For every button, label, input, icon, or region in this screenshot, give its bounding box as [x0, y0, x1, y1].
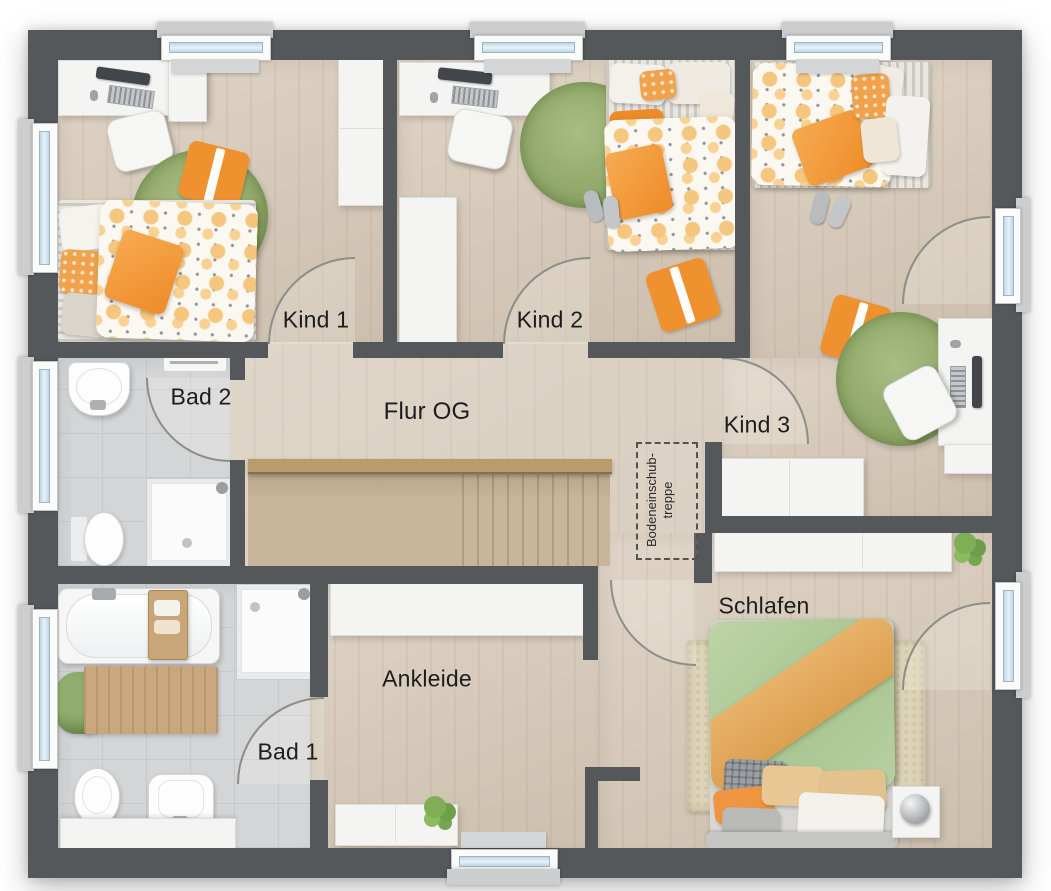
wall-kind1-kind2	[383, 60, 397, 342]
label-kind2: Kind 2	[517, 307, 583, 334]
attic-hatch-label: Bodeneinschub- treppe	[644, 430, 688, 570]
sideboard-kind3	[718, 458, 864, 520]
label-ankleide: Ankleide	[382, 666, 472, 693]
wall-segment	[583, 584, 598, 660]
mouse-icon	[430, 92, 438, 103]
window-plate	[447, 869, 560, 885]
wall-segment	[310, 780, 328, 848]
staircase-treads	[462, 472, 610, 566]
headboard-schlafen	[706, 832, 898, 848]
window-glass	[482, 42, 575, 53]
pillow	[860, 116, 900, 164]
label-kind1: Kind 1	[283, 307, 349, 334]
wall-kind2-kind3	[735, 60, 750, 342]
bath-mat-bad1	[84, 666, 218, 734]
wardrobe-kind2	[399, 197, 457, 344]
wall-segment	[598, 767, 640, 781]
desk-drawer-kind3	[944, 444, 994, 474]
floor-plan: Bodeneinschub- treppe Kind 1 Kind 2 Kind…	[0, 0, 1051, 891]
label-kind3: Kind 3	[724, 412, 790, 439]
wall-bad1-ankleide	[310, 584, 328, 697]
window-sill	[171, 59, 259, 73]
faucet-icon	[92, 588, 116, 600]
shower-head-icon	[298, 588, 310, 600]
shower-tray	[151, 483, 227, 561]
monitor-icon	[972, 356, 982, 408]
window-glass	[39, 617, 50, 761]
faucet-icon	[90, 400, 106, 410]
shower-head-icon	[216, 482, 228, 494]
attic-hatch-label-line1: Bodeneinschub-	[644, 430, 660, 570]
window-glass	[39, 369, 50, 503]
shower-tray	[241, 589, 311, 673]
window-glass	[459, 856, 550, 867]
lamp-icon	[900, 794, 930, 824]
label-schlafen: Schlafen	[718, 593, 809, 620]
wall-segment	[705, 442, 722, 518]
wall-segment	[588, 342, 750, 358]
mouse-icon	[90, 90, 98, 101]
toilet-seat	[82, 776, 112, 814]
sideboard-divider	[395, 806, 396, 842]
drain-icon	[182, 538, 192, 548]
mouse-icon	[950, 340, 961, 348]
window-sill	[484, 59, 571, 73]
window-glass	[39, 131, 50, 265]
window-glass	[1003, 590, 1014, 682]
desk-kind3	[938, 318, 994, 446]
wall-bad2-flur	[230, 460, 245, 566]
window-glass	[1003, 216, 1014, 296]
towel-rail-bad2	[163, 356, 227, 372]
towel-roll	[154, 620, 180, 634]
label-flur-og: Flur OG	[384, 398, 471, 426]
towel-rail-bar	[170, 361, 218, 364]
label-bad2: Bad 2	[170, 384, 231, 411]
wall-ankleide-schlafen	[585, 767, 598, 848]
window-sill	[461, 832, 546, 848]
plant-icon	[954, 532, 976, 554]
wall-kind3-schlafen	[705, 516, 992, 533]
pillow	[59, 249, 102, 296]
label-bad1: Bad 1	[257, 739, 318, 766]
wall-segment	[58, 342, 268, 358]
vanity-bad1	[60, 818, 236, 850]
sideboard-divider	[789, 460, 790, 516]
towel-roll	[154, 600, 180, 616]
staircase-railing	[248, 459, 612, 474]
attic-hatch-label-line2: treppe	[660, 430, 676, 570]
wall-outer-right	[992, 30, 1022, 878]
pillow	[639, 68, 678, 102]
toilet-bad2	[84, 512, 124, 566]
window-sill	[796, 59, 879, 73]
drain-icon	[250, 602, 260, 612]
wall-segment	[353, 342, 503, 358]
plant-icon	[424, 796, 446, 818]
bidet-bowl	[158, 780, 204, 818]
wall-segment	[230, 358, 245, 380]
window-glass	[169, 42, 263, 53]
bathtub-basin	[66, 594, 212, 658]
wall-bad2-bad1	[58, 566, 598, 584]
window-glass	[794, 42, 883, 53]
